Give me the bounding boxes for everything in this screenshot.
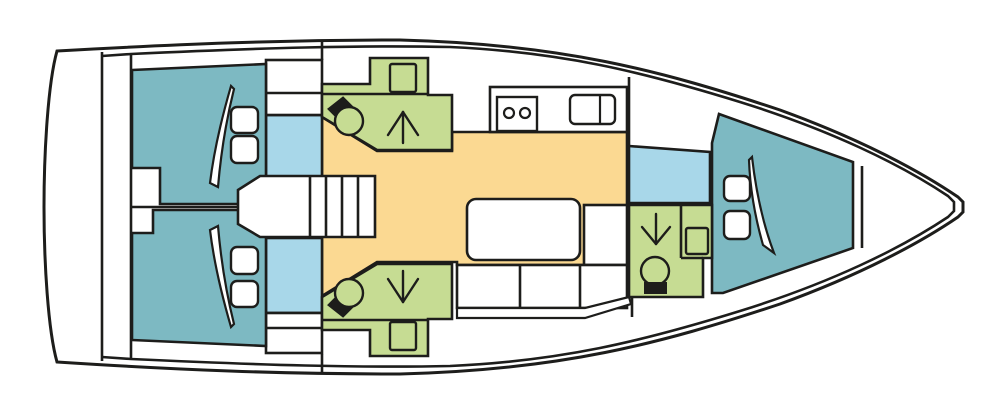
pillow-forward-1	[724, 176, 750, 201]
cabin-aft-starboard	[132, 210, 266, 346]
salon-bench-forward	[584, 205, 627, 265]
pillow-aft-starboard-1	[231, 247, 258, 274]
head-aft-port-toilet	[335, 107, 363, 135]
head-forward-toilet-tank	[645, 283, 666, 293]
pillow-aft-port-2	[231, 136, 258, 163]
salon-table	[467, 199, 580, 260]
corridor-starboard	[266, 238, 322, 313]
floor-plan-canvas	[0, 0, 1004, 413]
yacht-floor-plan	[0, 0, 1004, 413]
head-aft-starboard-toilet	[335, 279, 363, 307]
salon-settee	[457, 265, 627, 308]
pillow-aft-port-1	[231, 107, 258, 133]
locker-port	[266, 60, 322, 115]
galley-sink	[570, 95, 615, 124]
companionway-stairs	[238, 176, 375, 237]
pillow-aft-starboard-2	[231, 281, 258, 307]
galley-burner-right	[520, 108, 530, 118]
corridor-port	[266, 115, 322, 177]
locker-starboard	[266, 313, 322, 353]
head-forward	[629, 205, 712, 297]
galley-burner-left	[504, 108, 514, 118]
fwd-shower-compartment	[629, 146, 710, 203]
head-forward-toilet	[641, 257, 669, 285]
pillow-forward-2	[724, 211, 750, 239]
